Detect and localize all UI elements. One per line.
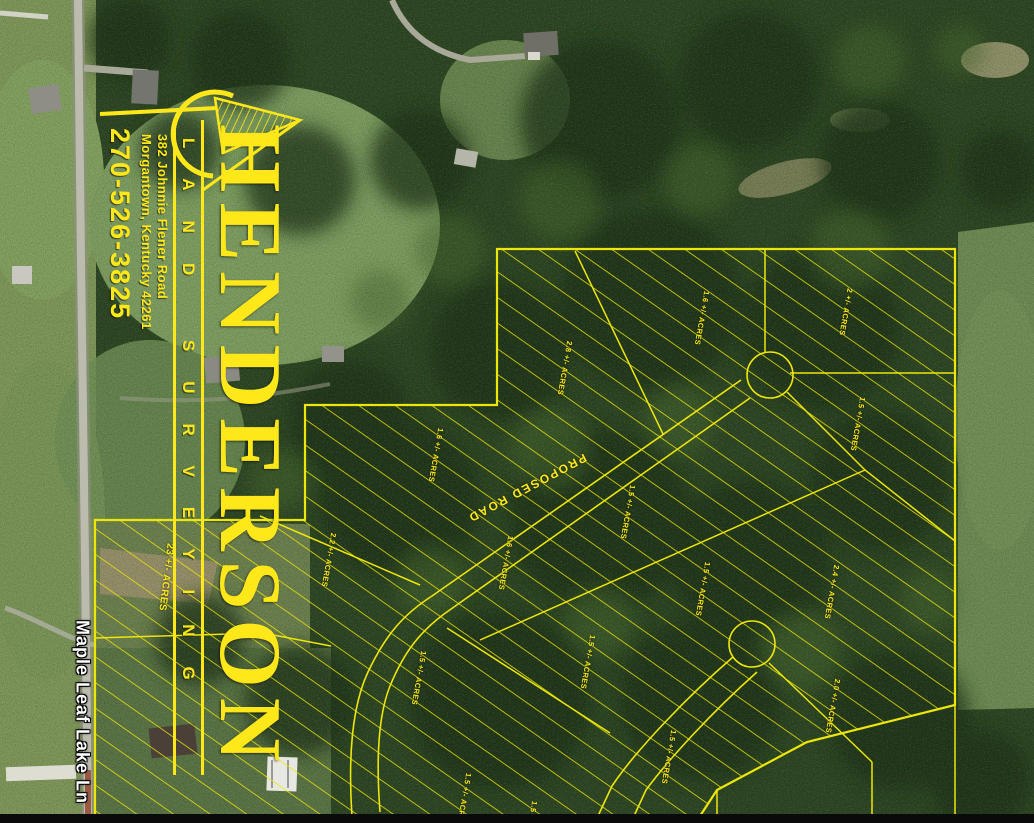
logo-address-line1: 382 Johnnie Flener Road bbox=[154, 134, 170, 818]
street-name-label: Maple Leaf Lake Ln bbox=[72, 620, 93, 804]
logo-swoosh-icon bbox=[95, 78, 315, 203]
logo-company-name: HENDERSON bbox=[206, 118, 292, 818]
logo-phone: 270-526-3825 bbox=[104, 118, 135, 818]
logo-address: 382 Johnnie Flener Road Morgantown, Kent… bbox=[137, 118, 170, 818]
logo-tagline: LAND SURVEYING bbox=[178, 118, 198, 818]
plat-map: 2.8 +/- ACRES 1.6 +/- ACRES 2 +/- ACRES … bbox=[0, 0, 1034, 823]
bottom-letterbox-bar bbox=[0, 814, 1034, 823]
logo-address-line2: Morgantown, Kentucky 42261 bbox=[137, 134, 153, 818]
surveyor-logo: HENDERSON LAND SURVEYING 382 Johnnie Fle… bbox=[104, 118, 292, 818]
logo-divider bbox=[173, 120, 176, 775]
